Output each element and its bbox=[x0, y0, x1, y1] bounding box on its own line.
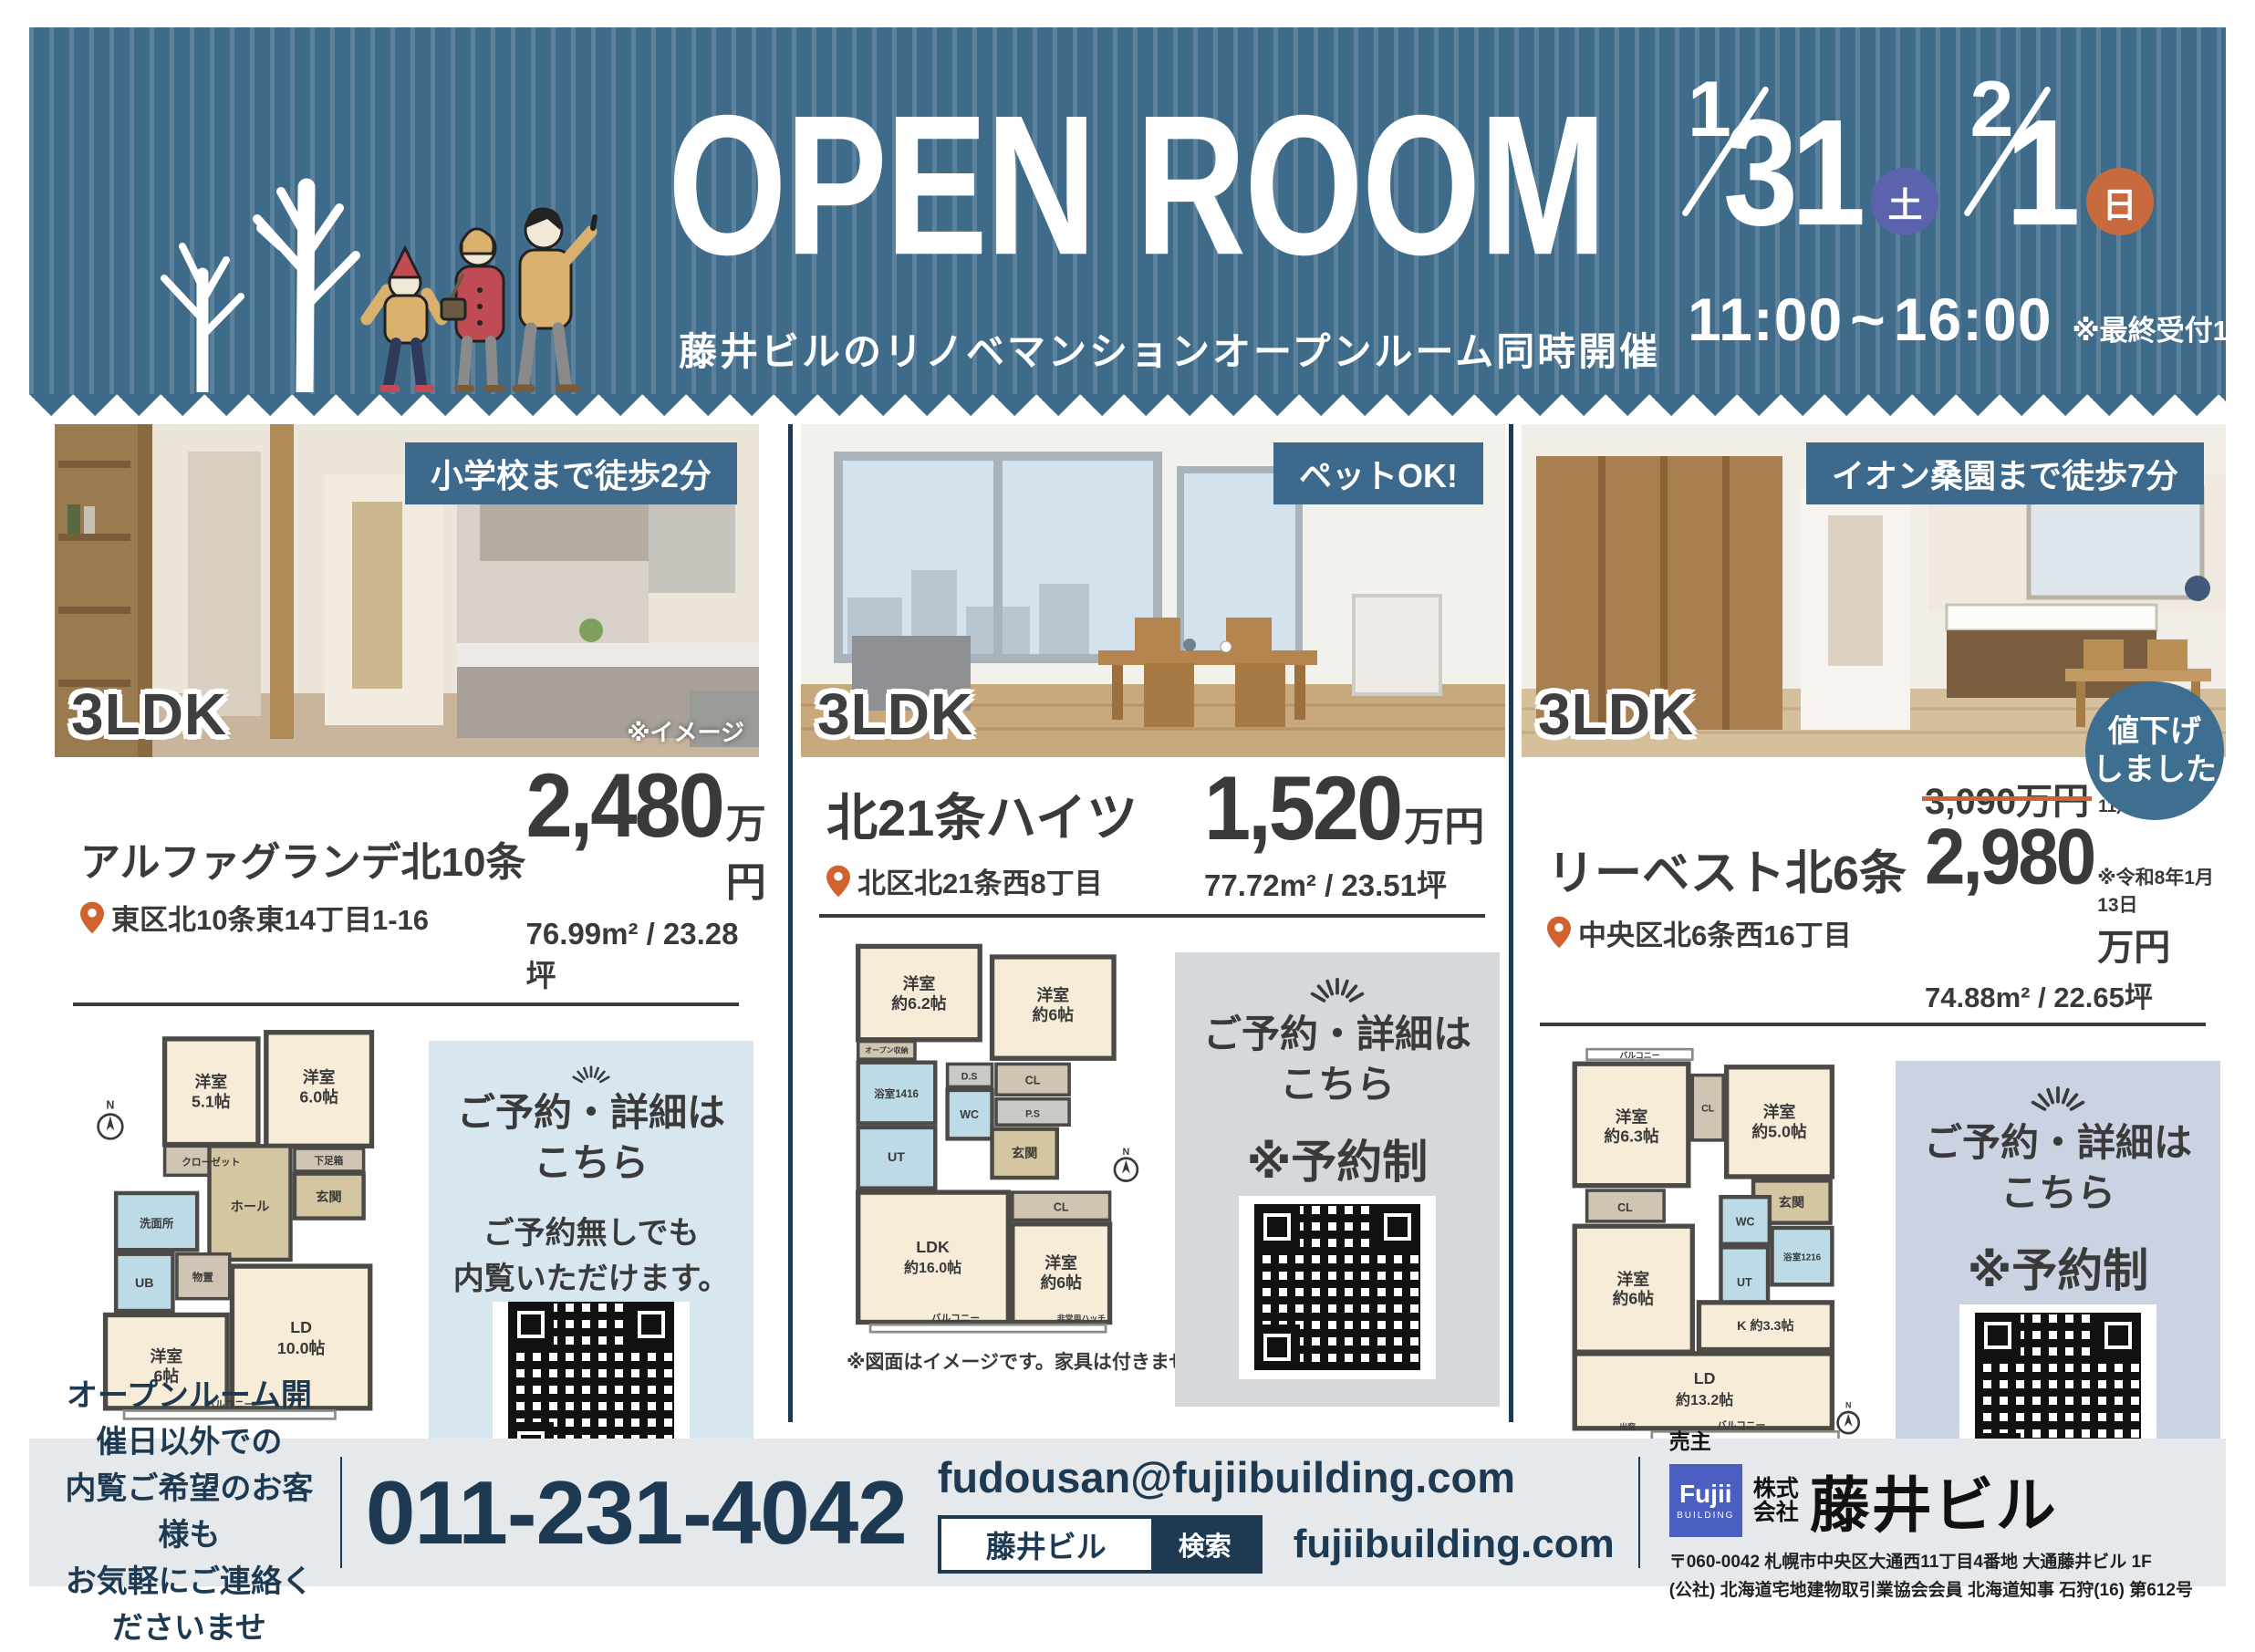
svg-text:浴室1216: 浴室1216 bbox=[1783, 1252, 1822, 1263]
date-day: 1 bbox=[2005, 114, 2073, 232]
map-pin-icon bbox=[1547, 916, 1571, 949]
sparkle-icon bbox=[1283, 976, 1392, 1010]
date-day: 31 bbox=[1723, 114, 1859, 232]
property-address-row: 北区北21条西8丁目 bbox=[826, 860, 1204, 901]
floor-plan: バルコニー 洋室 約6.3帖 CL 洋室 約5.0帖 玄関 CL WC 浴室12… bbox=[1554, 1043, 1879, 1442]
photo-badge: イオン桑園まで徒歩7分 bbox=[1806, 442, 2204, 504]
svg-text:浴室1416: 浴室1416 bbox=[874, 1087, 919, 1100]
sparkle-icon bbox=[2003, 1085, 2113, 1118]
svg-text:玄関: 玄関 bbox=[316, 1189, 341, 1205]
svg-text:玄関: 玄関 bbox=[1779, 1194, 1804, 1210]
svg-text:洋室: 洋室 bbox=[1617, 1269, 1650, 1288]
page-subtitle: 藤井ビルのリノベマンションオープンルーム同時開催 bbox=[679, 321, 1660, 377]
footer: オープンルーム開催日以外での 内覧ご希望のお客様も お気軽にご連絡くださいませ … bbox=[29, 1439, 2226, 1586]
footer-note: オープンルーム開催日以外での 内覧ご希望のお客様も お気軽にご連絡くださいませ bbox=[62, 1373, 317, 1652]
company-block: 売主 Fujii BUILDING 株式 会社 藤井ビル 〒060-0042 札… bbox=[1669, 1424, 2193, 1601]
svg-text:バルコニー: バルコニー bbox=[1619, 1051, 1659, 1060]
svg-text:5.1帖: 5.1帖 bbox=[192, 1092, 231, 1111]
layout-label: 3LDK bbox=[817, 681, 973, 748]
photo-badge: 小学校まで徒歩2分 bbox=[405, 442, 737, 504]
svg-text:UT: UT bbox=[888, 1150, 905, 1165]
svg-text:UT: UT bbox=[1737, 1276, 1752, 1289]
svg-text:オープン収納: オープン収納 bbox=[865, 1045, 909, 1055]
svg-text:物置: 物置 bbox=[192, 1271, 214, 1283]
price-note: ※令和8年1月13日 bbox=[2097, 863, 2226, 918]
svg-text:6.0帖: 6.0帖 bbox=[299, 1086, 338, 1106]
property-info: アルファグランデ北10条 東区北10条東14丁目1-16 2,480 万円 76… bbox=[55, 772, 759, 995]
divider-rule bbox=[1540, 1023, 2206, 1026]
layout-label: 3LDK bbox=[71, 681, 227, 748]
svg-text:CL: CL bbox=[1054, 1201, 1069, 1214]
layout-label: 3LDK bbox=[1538, 681, 1694, 748]
zigzag-border bbox=[29, 394, 2226, 416]
email-address[interactable]: fudousan@fujiibuilding.com bbox=[938, 1452, 1615, 1502]
price-unit: 万円 bbox=[1404, 794, 1484, 852]
time-start: 11:00 bbox=[1688, 285, 1843, 354]
reservation-panel: ご予約・詳細は こちら ※予約制 bbox=[1175, 952, 1500, 1407]
company-prefix: 株式 会社 bbox=[1753, 1477, 1799, 1525]
header-banner: OPEN ROOM 藤井ビルのリノベマンションオープンルーム同時開催 1 31 … bbox=[29, 27, 2226, 394]
reservation-panel: ご予約・詳細は こちら ご予約無しでも 内覧いただけます。 bbox=[429, 1041, 753, 1495]
property-card-2: ペットOK! 3LDK 北21条ハイツ 北区北21条西8丁目 1,520 万円 … bbox=[801, 424, 1505, 1407]
company-logo: Fujii BUILDING bbox=[1669, 1464, 1742, 1537]
event-time: 11:00 ~ 16:00 ※最終受付15:30 bbox=[1688, 285, 2255, 354]
svg-text:約6帖: 約6帖 bbox=[1040, 1273, 1082, 1292]
property-address: 北区北21条西8丁目 bbox=[857, 860, 1103, 901]
svg-text:N: N bbox=[1123, 1147, 1130, 1158]
price-value: 1,520 bbox=[1204, 768, 1400, 849]
child-figure bbox=[367, 248, 442, 389]
weekday-badge-sunday: 日 bbox=[2086, 168, 2154, 235]
property-name: アルファグランデ北10条 bbox=[80, 829, 526, 888]
phone-number[interactable]: 011-231-4042 bbox=[366, 1461, 907, 1564]
website-url[interactable]: fujiibuilding.com bbox=[1294, 1522, 1615, 1567]
photo-badge: ペットOK! bbox=[1273, 442, 1483, 504]
divider-rule bbox=[819, 914, 1485, 918]
svg-text:WC: WC bbox=[960, 1108, 979, 1121]
qr-code[interactable] bbox=[1239, 1196, 1436, 1379]
floor-plan-block: 洋室 約6.2帖 洋室 約6帖 オープン収納 浴室1416 UT D.S WC … bbox=[834, 934, 1159, 1407]
price-unit: 万円 bbox=[726, 791, 766, 908]
reserve-title-line2: こちら bbox=[1280, 1060, 1395, 1110]
svg-text:約13.2帖: 約13.2帖 bbox=[1676, 1391, 1733, 1408]
price-value: 2,980 bbox=[1925, 821, 2094, 892]
area-value: 74.88m² / 22.65坪 bbox=[1925, 974, 2226, 1015]
svg-text:約6帖: 約6帖 bbox=[1613, 1289, 1655, 1308]
svg-text:約5.0帖: 約5.0帖 bbox=[1751, 1121, 1806, 1140]
price-value: 2,480 bbox=[526, 765, 722, 847]
mother-figure bbox=[442, 229, 504, 389]
property-address-row: 東区北10条東14丁目1-16 bbox=[80, 897, 526, 938]
svg-text:N: N bbox=[106, 1098, 114, 1111]
property-info: 北21条ハイツ 北区北21条西8丁目 1,520 万円 77.72m² / 23… bbox=[801, 772, 1505, 907]
event-dates: 1 31 土 2 1 日 bbox=[1688, 75, 2154, 232]
property-address: 中央区北6条西16丁目 bbox=[1578, 912, 1852, 953]
time-separator: ~ bbox=[1850, 285, 1886, 354]
father-figure bbox=[516, 207, 595, 389]
svg-text:洋室: 洋室 bbox=[1616, 1107, 1648, 1126]
page-title: OPEN ROOM bbox=[668, 71, 1605, 300]
svg-text:約6.2帖: 約6.2帖 bbox=[891, 993, 946, 1013]
property-card-3: イオン桑園まで徒歩7分 3LDK 値下げ しました リーベスト北6条 中央区北6… bbox=[1522, 424, 2226, 1515]
svg-text:洋室: 洋室 bbox=[1037, 985, 1070, 1004]
property-address-row: 中央区北6条西16丁目 bbox=[1547, 912, 1925, 953]
time-end: 16:00 bbox=[1894, 285, 2052, 354]
reserve-note: ※予約制 bbox=[1247, 1129, 1429, 1196]
event-date-2: 2 1 日 bbox=[1969, 75, 2153, 232]
search-keyword[interactable]: 藤井ビル bbox=[941, 1519, 1151, 1570]
search-box[interactable]: 藤井ビル 検索 bbox=[938, 1515, 1263, 1574]
plan-caption: ※図面はイメージです。家具は付きません。 bbox=[847, 1347, 1159, 1375]
column-divider bbox=[1509, 424, 1513, 1422]
event-date-1: 1 31 土 bbox=[1688, 75, 1938, 232]
svg-text:洗面所: 洗面所 bbox=[140, 1216, 174, 1230]
reserve-note: ご予約無しでも 内覧いただけます。 bbox=[453, 1211, 730, 1302]
svg-text:約6帖: 約6帖 bbox=[1033, 1004, 1075, 1023]
property-photo: 小学校まで徒歩2分 3LDK ※イメージ bbox=[55, 424, 759, 757]
svg-text:N: N bbox=[1845, 1401, 1851, 1410]
area-value: 77.72m² / 23.51坪 bbox=[1204, 861, 1505, 905]
seller-label: 売主 bbox=[1669, 1424, 2193, 1455]
svg-text:洋室: 洋室 bbox=[151, 1346, 183, 1366]
company-license: (公社) 北海道宅地建物取引業協会会員 北海道知事 石狩(16) 第612号 bbox=[1669, 1576, 2193, 1601]
property-name: 北21条ハイツ bbox=[826, 777, 1204, 851]
svg-text:UB: UB bbox=[135, 1276, 154, 1291]
svg-text:10.0帖: 10.0帖 bbox=[277, 1338, 326, 1357]
map-pin-icon bbox=[80, 901, 104, 934]
svg-text:約16.0帖: 約16.0帖 bbox=[904, 1259, 961, 1276]
floor-plan: 洋室 約6.2帖 洋室 約6帖 オープン収納 浴室1416 UT D.S WC … bbox=[834, 934, 1159, 1334]
svg-text:WC: WC bbox=[1736, 1215, 1755, 1228]
reserve-title-line1: ご予約・詳細は bbox=[457, 1088, 725, 1138]
svg-text:バルコニー: バルコニー bbox=[931, 1313, 980, 1325]
property-name: リーベスト北6条 bbox=[1547, 835, 1925, 903]
svg-text:洋室: 洋室 bbox=[1763, 1102, 1796, 1121]
svg-text:CL: CL bbox=[1617, 1201, 1633, 1214]
reserve-title-line2: こちら bbox=[534, 1138, 649, 1189]
floor-plan: 洋室 5.1帖 洋室 6.0帖 クローゼット 下足箱 玄関 ホール 洗面所 UB… bbox=[88, 1023, 412, 1422]
company-address: 〒060-0042 札幌市中央区大通西11丁目4番地 大通藤井ビル 1F bbox=[1669, 1548, 2193, 1573]
time-note: ※最終受付15:30 bbox=[2073, 307, 2255, 348]
svg-text:洋室: 洋室 bbox=[194, 1072, 227, 1091]
tree-icon bbox=[164, 187, 356, 392]
svg-text:D.S: D.S bbox=[961, 1071, 978, 1082]
area-value: 76.99m² / 23.28坪 bbox=[526, 917, 766, 995]
svg-text:LD: LD bbox=[290, 1318, 312, 1336]
svg-text:約6.3帖: 約6.3帖 bbox=[1604, 1127, 1658, 1146]
photo-note: ※イメージ bbox=[627, 714, 744, 748]
reserve-title-line2: こちら bbox=[2000, 1169, 2115, 1219]
svg-text:洋室: 洋室 bbox=[903, 974, 936, 993]
company-name: 藤井ビル bbox=[1810, 1457, 2058, 1544]
property-card-1: 小学校まで徒歩2分 3LDK ※イメージ アルファグランデ北10条 東区北10条… bbox=[55, 424, 759, 1495]
footer-divider bbox=[340, 1457, 342, 1568]
sparkle-icon bbox=[536, 1065, 646, 1088]
svg-text:P.S: P.S bbox=[1025, 1108, 1040, 1119]
footer-contact: fudousan@fujiibuilding.com 藤井ビル 検索 fujii… bbox=[938, 1452, 1615, 1574]
svg-text:LD: LD bbox=[1694, 1369, 1716, 1387]
svg-text:非常用ハッチ: 非常用ハッチ bbox=[1057, 1314, 1106, 1324]
weekday-badge-saturday: 土 bbox=[1871, 168, 1938, 235]
svg-text:玄関: 玄関 bbox=[1012, 1145, 1037, 1161]
column-divider bbox=[788, 424, 793, 1422]
svg-text:出窓: 出窓 bbox=[1619, 1422, 1636, 1432]
price-drop-badge: 値下げ しました bbox=[2085, 681, 2224, 820]
svg-text:クローゼット: クローゼット bbox=[182, 1157, 240, 1169]
svg-text:K 約3.3帖: K 約3.3帖 bbox=[1737, 1317, 1794, 1334]
svg-text:下足箱: 下足箱 bbox=[314, 1155, 343, 1167]
reserve-note: ※予約制 bbox=[1968, 1238, 2149, 1304]
svg-text:CL: CL bbox=[1025, 1075, 1041, 1087]
svg-text:CL: CL bbox=[1701, 1104, 1715, 1115]
svg-text:ホール: ホール bbox=[231, 1200, 270, 1215]
price-unit: 万円 bbox=[2097, 918, 2170, 971]
family-illustration bbox=[66, 91, 613, 392]
search-button[interactable]: 検索 bbox=[1151, 1519, 1259, 1570]
reserve-title-line1: ご予約・詳細は bbox=[1924, 1118, 2192, 1169]
divider-rule bbox=[73, 1003, 739, 1006]
property-address: 東区北10条東14丁目1-16 bbox=[111, 897, 429, 938]
footer-divider bbox=[1638, 1457, 1640, 1568]
property-photo: ペットOK! 3LDK bbox=[801, 424, 1505, 757]
map-pin-icon bbox=[826, 865, 850, 898]
svg-text:LDK: LDK bbox=[916, 1238, 950, 1256]
reserve-title-line1: ご予約・詳細は bbox=[1203, 1010, 1471, 1060]
svg-text:洋室: 洋室 bbox=[303, 1067, 336, 1086]
svg-text:洋室: 洋室 bbox=[1044, 1253, 1077, 1273]
